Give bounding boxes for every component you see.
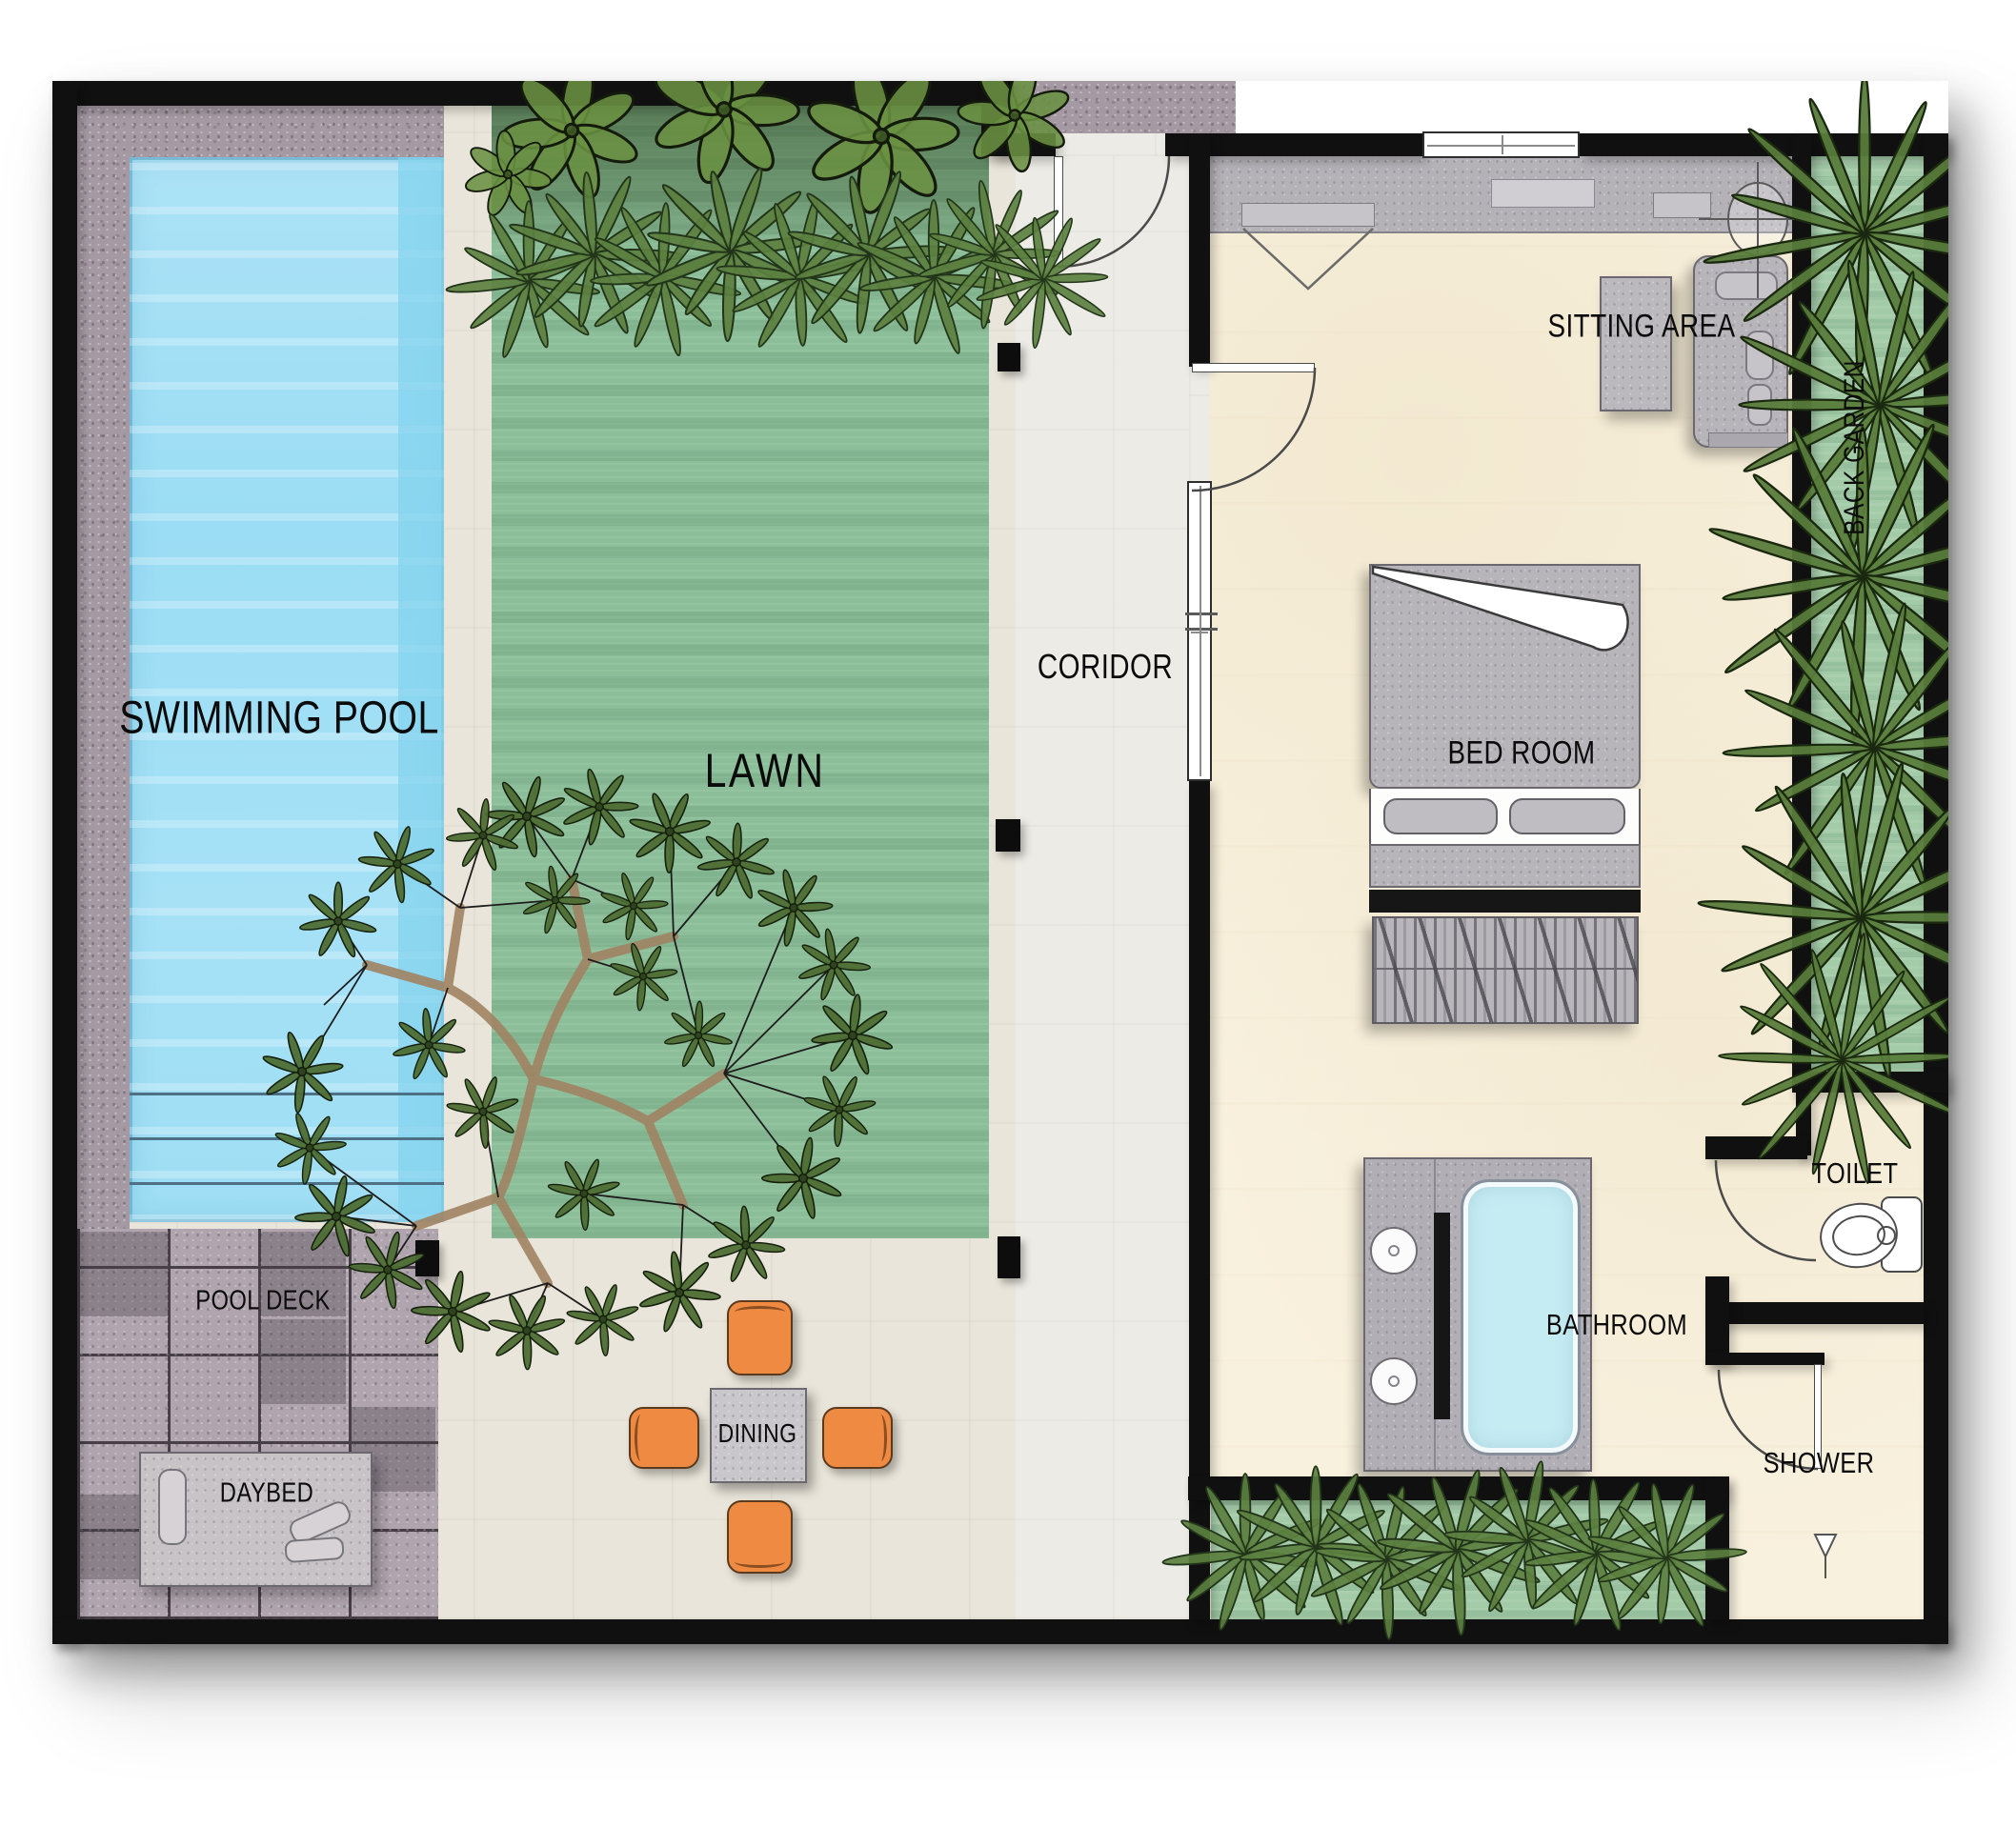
toilet-fixture: [1817, 1197, 1922, 1272]
room-label-back-garden: BACK GARDEN: [1839, 360, 1871, 535]
room-label-pool-deck: POOL DECK: [195, 1286, 331, 1317]
floorplan-page: SWIMMING POOL LAWN CORIDOR SITTING AREA …: [0, 0, 2016, 1827]
room-label-lawn: LAWN: [705, 743, 826, 798]
room-label-sitting-area: SITTING AREA: [1547, 309, 1735, 346]
tree: [247, 759, 910, 1377]
room-label-bathroom: BATHROOM: [1546, 1308, 1687, 1342]
door-swings: [1058, 156, 1818, 1469]
room-label-swimming-pool: SWIMMING POOL: [119, 693, 439, 745]
room-label-bed-room: BED ROOM: [1447, 735, 1595, 773]
room-label-shower: SHOWER: [1764, 1446, 1875, 1480]
closet-chevron: [1243, 229, 1373, 289]
planter-strip-plants: [1162, 1427, 1764, 1644]
floorplan-sheet: SWIMMING POOL LAWN CORIDOR SITTING AREA …: [52, 81, 1948, 1644]
room-label-toilet: TOILET: [1812, 1156, 1899, 1191]
room-label-dining: DINING: [718, 1418, 797, 1449]
tree-foliage: [247, 759, 910, 1377]
room-label-daybed: DAYBED: [220, 1478, 313, 1510]
room-label-coridor: CORIDOR: [1038, 647, 1173, 687]
hedge-plants: [446, 81, 1139, 386]
shower-wand: [1815, 1535, 1836, 1578]
bed-fold: [1373, 567, 1628, 650]
back-garden-plants: [1643, 81, 1948, 1233]
